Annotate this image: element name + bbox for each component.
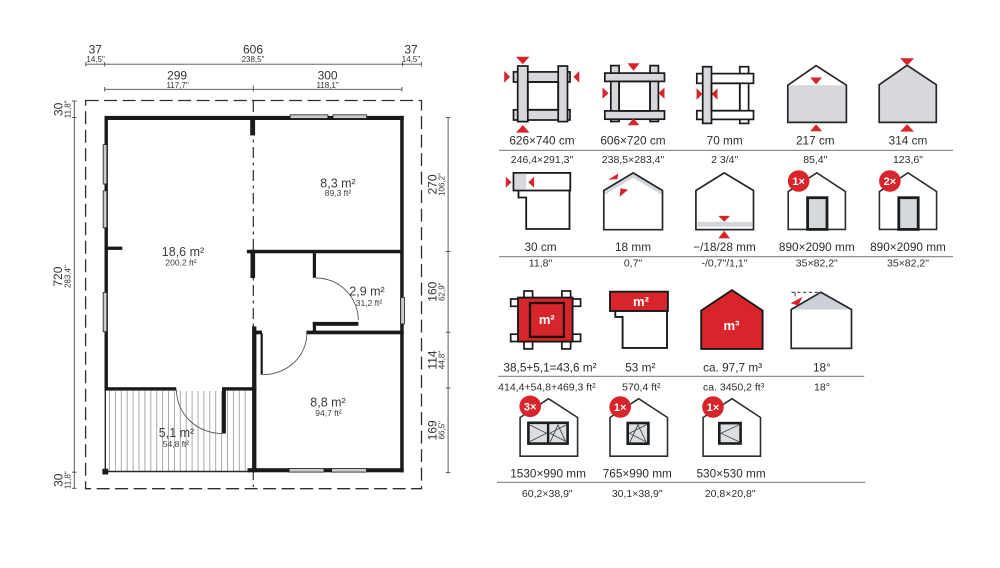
svg-text:54,8 ft²: 54,8 ft² xyxy=(163,439,190,449)
svg-text:1×: 1× xyxy=(707,402,720,414)
svg-text:3×: 3× xyxy=(524,401,537,413)
svg-text:-/0,7"/1,1": -/0,7"/1,1" xyxy=(702,258,748,270)
svg-text:18°: 18° xyxy=(813,361,831,375)
svg-text:m²: m² xyxy=(539,312,556,327)
svg-text:35×82,2": 35×82,2" xyxy=(887,258,929,270)
svg-text:217 cm: 217 cm xyxy=(796,134,835,148)
svg-text:606×720 cm: 606×720 cm xyxy=(600,134,665,148)
svg-text:414,4+54,8+469,3 ft²: 414,4+54,8+469,3 ft² xyxy=(498,382,596,394)
svg-text:118,1": 118,1" xyxy=(316,81,338,90)
svg-text:53 m²: 53 m² xyxy=(625,361,655,375)
svg-text:890×2090 mm: 890×2090 mm xyxy=(779,240,855,254)
svg-text:314 cm: 314 cm xyxy=(889,134,928,148)
svg-text:ca. 97,7 m³: ca. 97,7 m³ xyxy=(703,361,762,375)
svg-text:18°: 18° xyxy=(814,382,830,394)
svg-text:2,9 m²: 2,9 m² xyxy=(349,285,384,299)
svg-text:94,7 ft²: 94,7 ft² xyxy=(315,408,342,418)
svg-text:70 mm: 70 mm xyxy=(707,134,743,148)
svg-text:5,1 m²: 5,1 m² xyxy=(159,426,194,440)
svg-text:283,4": 283,4" xyxy=(63,265,72,288)
svg-text:44,8": 44,8" xyxy=(437,351,446,370)
svg-text:570,4 ft²: 570,4 ft² xyxy=(622,382,661,394)
svg-text:85,4": 85,4" xyxy=(803,154,827,166)
svg-text:35×82,2": 35×82,2" xyxy=(796,258,838,270)
svg-text:200,2 ft²: 200,2 ft² xyxy=(165,258,196,268)
svg-text:238,5": 238,5" xyxy=(242,55,265,64)
svg-text:238,5×283,4": 238,5×283,4" xyxy=(602,154,665,166)
svg-text:14,5": 14,5" xyxy=(86,55,105,64)
svg-text:117,7": 117,7" xyxy=(166,81,188,90)
svg-text:38,5+5,1=43,6 m²: 38,5+5,1=43,6 m² xyxy=(503,361,596,375)
svg-text:60,2×38,9": 60,2×38,9" xyxy=(522,488,573,500)
svg-text:89,3 ft²: 89,3 ft² xyxy=(325,188,352,198)
svg-text:11,8": 11,8" xyxy=(63,471,72,489)
svg-text:890×2090 mm: 890×2090 mm xyxy=(870,240,946,254)
svg-text:66,5": 66,5" xyxy=(437,421,446,440)
svg-text:123,6": 123,6" xyxy=(893,154,923,166)
svg-text:m²: m² xyxy=(633,294,650,309)
svg-text:1530×990 mm: 1530×990 mm xyxy=(510,467,586,481)
svg-text:106,2": 106,2" xyxy=(437,173,446,196)
svg-text:30 cm: 30 cm xyxy=(524,240,556,254)
svg-text:11,8": 11,8" xyxy=(63,100,72,118)
svg-text:626×740 cm: 626×740 cm xyxy=(509,134,574,148)
svg-text:11,8": 11,8" xyxy=(529,258,553,270)
svg-text:14,5": 14,5" xyxy=(402,55,421,64)
svg-text:−/18/28 mm: −/18/28 mm xyxy=(693,240,756,254)
svg-text:62,9": 62,9" xyxy=(437,282,446,301)
svg-text:ca. 3450,2 ft³: ca. 3450,2 ft³ xyxy=(703,382,765,394)
svg-text:18 mm: 18 mm xyxy=(615,240,651,254)
svg-text:31,2 ft²: 31,2 ft² xyxy=(356,298,383,308)
svg-text:1×: 1× xyxy=(614,402,627,414)
svg-text:0,7": 0,7" xyxy=(624,258,643,270)
svg-text:20,8×20,8": 20,8×20,8" xyxy=(705,488,756,500)
svg-text:m³: m³ xyxy=(724,318,741,333)
svg-text:530×530 mm: 530×530 mm xyxy=(697,467,766,481)
svg-text:30,1×38,9": 30,1×38,9" xyxy=(612,488,663,500)
svg-text:1×: 1× xyxy=(792,176,805,188)
svg-text:246,4×291,3": 246,4×291,3" xyxy=(511,154,574,166)
svg-text:2 3/4": 2 3/4" xyxy=(711,154,738,166)
svg-text:765×990 mm: 765×990 mm xyxy=(603,467,672,481)
svg-text:2×: 2× xyxy=(884,176,897,188)
